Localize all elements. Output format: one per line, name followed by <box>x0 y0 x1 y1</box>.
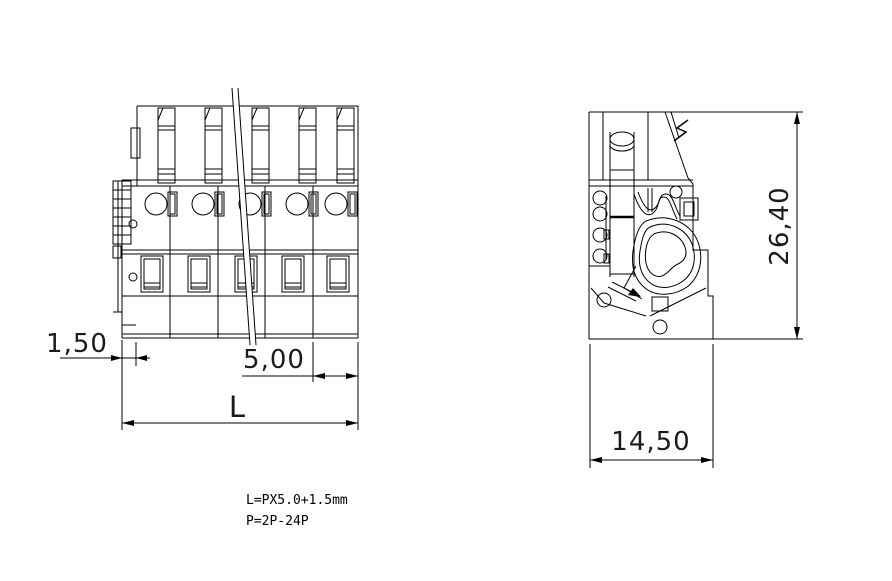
note-length-formula: L=PX5.0+1.5mm <box>246 493 348 508</box>
dimension-depth: 14,50 <box>590 344 713 468</box>
height-label: 26,40 <box>765 186 795 265</box>
drawing-canvas: 1,50 5,00 L 26,40 14,50 L=PX5.0+1.5mm P=… <box>0 0 892 581</box>
dimension-height: 26,40 <box>765 112 800 339</box>
mounting-flange <box>113 181 137 312</box>
front-view <box>113 88 358 345</box>
dimension-end-margin: 1,50 <box>46 329 150 430</box>
dimension-pitch: 5,00 <box>242 342 358 430</box>
depth-label: 14,50 <box>611 427 690 457</box>
lever-slots <box>158 108 354 183</box>
side-window <box>680 198 698 220</box>
note-pole-range: P=2P-24P <box>246 514 309 529</box>
side-notch <box>131 128 140 158</box>
technical-drawing: 1,50 5,00 L 26,40 14,50 L=PX5.0+1.5mm P=… <box>0 0 892 581</box>
end-margin-label: 1,50 <box>46 329 108 359</box>
actuator-cylinder <box>604 132 634 277</box>
highlight-mark <box>674 120 688 141</box>
notes: L=PX5.0+1.5mm P=2P-24P <box>246 493 348 529</box>
pitch-label: 5,00 <box>243 345 305 375</box>
length-label: L <box>229 390 245 424</box>
dimension-length: L <box>122 390 358 426</box>
lower-details <box>589 188 706 316</box>
spring-clamp <box>608 192 701 301</box>
clamp-circles <box>145 192 357 216</box>
